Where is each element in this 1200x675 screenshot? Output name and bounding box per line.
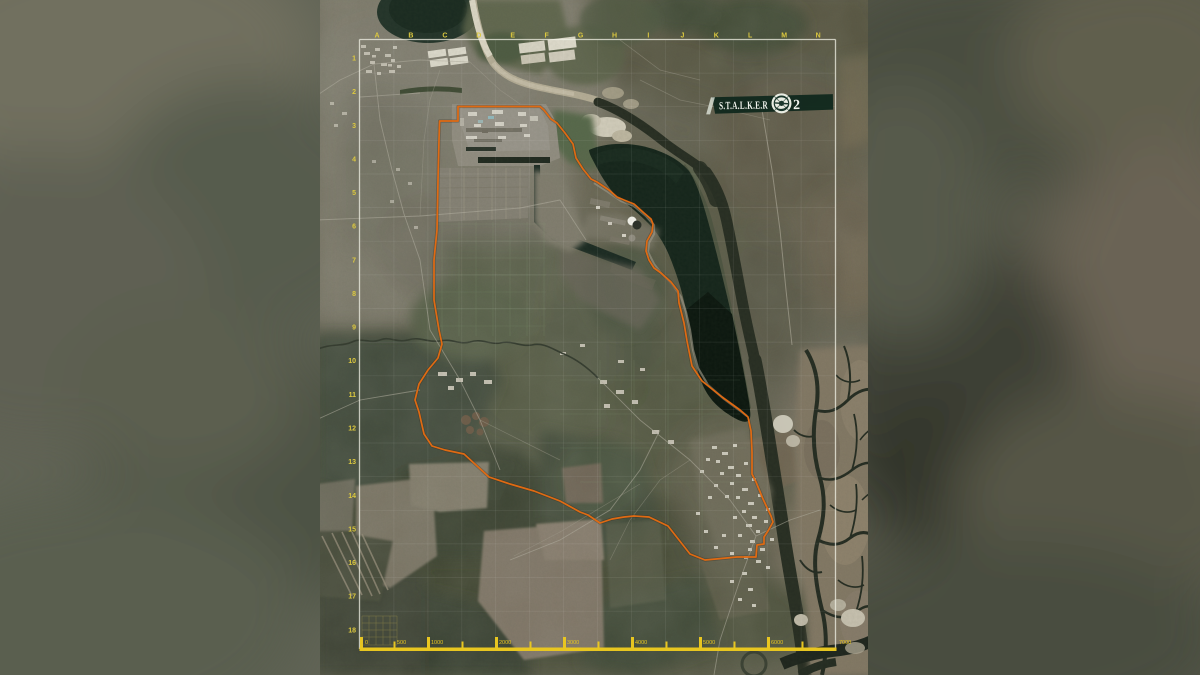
svg-text:3: 3 xyxy=(352,123,356,130)
svg-text:5: 5 xyxy=(352,190,356,197)
svg-text:J: J xyxy=(680,33,684,40)
svg-text:1000: 1000 xyxy=(431,640,443,646)
svg-text:I: I xyxy=(647,33,649,40)
svg-text:D: D xyxy=(476,33,481,40)
svg-text:S.T.A.L.K.E.R: S.T.A.L.K.E.R xyxy=(719,100,769,113)
svg-text:2000: 2000 xyxy=(499,640,511,646)
svg-text:11: 11 xyxy=(349,392,357,399)
svg-text:500: 500 xyxy=(397,640,406,646)
svg-text:5000: 5000 xyxy=(703,640,715,646)
svg-text:6: 6 xyxy=(352,224,356,231)
svg-text:7000: 7000 xyxy=(839,640,851,646)
svg-text:E: E xyxy=(510,33,515,40)
svg-text:9: 9 xyxy=(352,325,356,332)
svg-text:4000: 4000 xyxy=(635,640,647,646)
svg-text:10: 10 xyxy=(348,358,356,365)
svg-text:14: 14 xyxy=(348,493,356,500)
svg-text:16: 16 xyxy=(348,560,356,567)
svg-text:B: B xyxy=(408,33,413,40)
svg-text:3000: 3000 xyxy=(567,640,579,646)
svg-text:N: N xyxy=(816,33,821,40)
svg-text:12: 12 xyxy=(348,426,356,433)
svg-text:18: 18 xyxy=(348,627,356,634)
svg-text:6000: 6000 xyxy=(771,640,783,646)
svg-text:2: 2 xyxy=(352,89,356,96)
svg-text:C: C xyxy=(442,33,447,40)
svg-text:H: H xyxy=(612,33,617,40)
svg-text:4: 4 xyxy=(352,156,356,163)
svg-text:F: F xyxy=(545,33,550,40)
svg-text:G: G xyxy=(578,33,584,40)
svg-text:K: K xyxy=(714,33,719,40)
svg-text:13: 13 xyxy=(348,459,356,466)
svg-text:7: 7 xyxy=(352,257,356,264)
svg-text:L: L xyxy=(748,33,753,40)
svg-text:8: 8 xyxy=(352,291,356,298)
svg-text:2: 2 xyxy=(793,98,800,113)
svg-text:A: A xyxy=(374,33,379,40)
svg-text:M: M xyxy=(781,33,787,40)
svg-text:15: 15 xyxy=(348,526,356,533)
svg-text:17: 17 xyxy=(348,594,356,601)
svg-text:1: 1 xyxy=(352,56,356,63)
